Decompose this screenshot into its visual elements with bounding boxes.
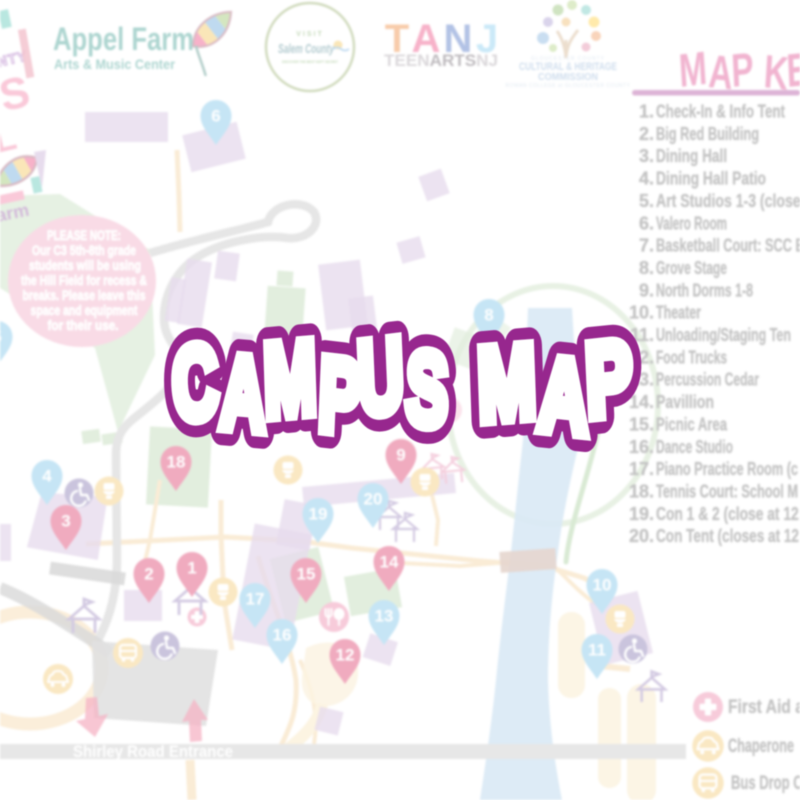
svg-text:CAMPUS: CAMPUS [168,319,452,455]
svg-text:MAP: MAP [474,321,635,455]
